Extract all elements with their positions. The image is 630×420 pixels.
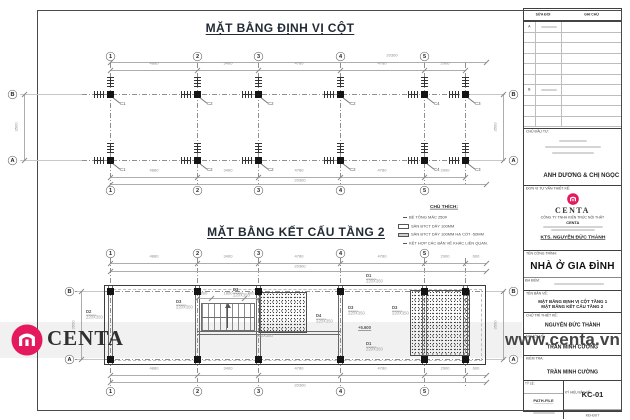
- revision-cell: A: [524, 22, 536, 32]
- grid-bubble: 2: [192, 248, 201, 257]
- rebar-mark-icon: [255, 143, 262, 153]
- company-line2: CENTA: [566, 221, 579, 223]
- dim-text: 20300: [380, 54, 403, 59]
- footer-table: TỶ LỆ: PATH-FILE KÝ HIỆU BẢN VẼ: KC-01 K…: [524, 381, 621, 419]
- dim-text: 20300: [288, 179, 311, 184]
- revision-mark: B: [528, 88, 530, 92]
- company-address-placeholder: [551, 229, 595, 231]
- dim-text: 4780: [370, 62, 393, 67]
- dim-text: 4880: [142, 255, 165, 260]
- dim-tick: [484, 60, 490, 66]
- sheet-code: KĐ-Đ07: [577, 414, 608, 418]
- beam-size: 220X350: [348, 311, 365, 316]
- dim-text: 2900: [433, 255, 456, 260]
- legend-item-text: SÀN BTCT DÀY 100MM: [411, 224, 454, 228]
- checker-name: TRẦN MINH CƯỜNG: [544, 369, 600, 375]
- column-label: C2: [350, 102, 356, 106]
- line: [470, 94, 505, 95]
- client-details-placeholder: [524, 140, 621, 154]
- grid-bubble: 5: [419, 386, 428, 395]
- top-plan-title: MẶT BẰNG ĐỊNH VỊ CỘT: [170, 21, 390, 35]
- path-file-label: PATH-FILE: [534, 397, 554, 404]
- beam-label: 150X350: [256, 334, 273, 339]
- revision-table: SỬA ĐỔIGHI CHÚAB: [524, 9, 621, 129]
- column-marker: [337, 288, 344, 295]
- dim-text: 2900: [433, 367, 456, 372]
- rebar-mark-icon: [94, 157, 104, 164]
- grid-bubble: 4: [335, 185, 344, 194]
- legend-heading: CHÚ THÍCH:: [430, 204, 485, 209]
- grid-bubble: 3: [253, 386, 262, 395]
- drawing-name-label: TÊN BẢN VẼ:: [526, 292, 548, 296]
- column-marker: [107, 288, 114, 295]
- grid-bubble: 2: [192, 185, 201, 194]
- beam-line: [195, 286, 196, 364]
- beam-label: D1220X350: [366, 342, 383, 352]
- grid-bubble: A: [508, 354, 517, 363]
- dim-text: 4880: [142, 62, 165, 67]
- grid-bubble: B: [508, 89, 517, 98]
- rebar-mark-icon: [94, 91, 104, 98]
- line: [470, 160, 505, 161]
- rebar-mark-icon: [107, 143, 114, 153]
- dim-text: 2900: [433, 62, 456, 67]
- column-marker: [194, 288, 201, 295]
- hatch-lowered-slab: [410, 290, 470, 356]
- grid-bubble: 1: [105, 248, 114, 257]
- dim-text: 20300: [288, 265, 311, 270]
- column-marker: [421, 288, 428, 295]
- beam-line: [112, 286, 113, 364]
- dim-text: 600: [464, 255, 487, 260]
- drawing-code-label: KÝ HIỆU BẢN VẼ:: [565, 391, 591, 394]
- dim-text: 3400: [216, 255, 239, 260]
- project-label: TÊN CÔNG TRÌNH:: [526, 252, 557, 256]
- revision-cell: [536, 22, 562, 32]
- revision-cell: [536, 54, 562, 64]
- rebar-mark-icon: [242, 91, 252, 98]
- line: [20, 94, 82, 95]
- grid-bubble: 4: [335, 386, 344, 395]
- dim-text: 4880: [142, 169, 165, 174]
- beam-size: 150X350: [256, 334, 273, 339]
- dash-bullet-icon: [403, 243, 407, 244]
- drawing-name-section: TÊN BẢN VẼ: MẶT BẰNG ĐỊNH VỊ CỘT TẦNG 1 …: [524, 291, 621, 313]
- grid-bubble: B: [64, 286, 73, 295]
- rebar-mark-icon: [449, 157, 459, 164]
- location-label: ĐỊA ĐIỂM:: [525, 279, 540, 282]
- company-line1: CÔNG TY TNHH KIẾN TRÚC NỘI THẤT: [541, 216, 604, 218]
- stair-arrow: [227, 306, 228, 328]
- column-label: C4: [434, 102, 440, 106]
- rebar-mark-icon: [194, 77, 201, 87]
- revision-note-placeholder: [541, 89, 557, 91]
- grid-bubble: B: [7, 89, 16, 98]
- column-label: C2: [207, 168, 213, 172]
- rebar-mark-icon: [337, 143, 344, 153]
- beam-size: 220X350: [86, 315, 103, 320]
- column-label: C3: [475, 168, 481, 172]
- dim-text: 3500: [15, 115, 20, 138]
- revision-row: [524, 33, 621, 44]
- checker-label: KIỂM TRA:: [526, 357, 543, 361]
- revision-cell: [536, 96, 562, 106]
- revision-cell: [562, 75, 621, 85]
- revision-row: [524, 64, 621, 75]
- dim-text: 4780: [287, 169, 310, 174]
- sheet-frame: [37, 10, 621, 11]
- title-block: SỬA ĐỔIGHI CHÚAB CHỦ ĐẦU TƯ: ANH DƯƠNG &…: [523, 8, 622, 412]
- grid-bubble: 1: [105, 386, 114, 395]
- dim-tick: [484, 380, 490, 386]
- column-marker: [337, 356, 344, 363]
- revision-cell: [524, 43, 536, 53]
- grid-bubble: A: [508, 155, 517, 164]
- location-row: ĐỊA ĐIỂM:: [524, 277, 621, 290]
- client-label: CHỦ ĐẦU TƯ:: [526, 130, 549, 134]
- column-marker: [255, 356, 262, 363]
- rebar-mark-icon: [421, 143, 428, 153]
- legend-item: SÀN BTCT DÀY 100MM HẠ CỐT -50MM: [396, 231, 522, 239]
- revision-cell: [536, 64, 562, 74]
- beam-label: D2220X350: [86, 310, 103, 320]
- revision-cell: [562, 96, 621, 106]
- legend: CHÚ THÍCH: BÊ TÔNG MÁC 250# SÀN BTCT DÀY…: [396, 204, 522, 247]
- rebar-mark-icon: [449, 91, 459, 98]
- row-axis: [82, 94, 500, 95]
- legend-item-text: KẾT HỢP CÁC BẢN VẼ KHÁC LIÊN QUAN.: [409, 241, 488, 245]
- revision-header-cell: SỬA ĐỔI: [534, 13, 553, 17]
- beam-size: 220X350: [176, 305, 193, 310]
- row-axis: [82, 160, 500, 161]
- column-label: C4: [434, 168, 440, 172]
- revision-row: A: [524, 22, 621, 33]
- revision-cell: [536, 117, 562, 127]
- dim-tick: [484, 269, 490, 275]
- rebar-mark-icon: [324, 91, 334, 98]
- grid-bubble: 5: [419, 185, 428, 194]
- dim-line: [503, 291, 504, 359]
- revision-cell: [536, 106, 562, 116]
- revision-cell: [562, 64, 621, 74]
- revision-cell: [562, 22, 621, 32]
- hatched-slab-swatch-icon: [398, 233, 409, 238]
- dim-tick: [484, 261, 490, 267]
- revision-cell: [562, 33, 621, 43]
- dim-text: 20300: [288, 384, 311, 389]
- rebar-mark-icon: [242, 157, 252, 164]
- bottom-plan-title: MẶT BẰNG KẾT CẤU TẦNG 2: [186, 225, 406, 239]
- revision-row: [524, 54, 621, 65]
- grid-bubble: 1: [105, 185, 114, 194]
- beam-size: 220X350: [366, 347, 383, 352]
- beam-line: [108, 286, 109, 364]
- grid-bubble: B: [508, 286, 517, 295]
- column-marker: [462, 288, 469, 295]
- dim-text: 3500: [494, 313, 499, 336]
- dim-text: 600: [464, 367, 487, 372]
- footer-placeholder: [533, 412, 555, 414]
- revision-cell: [524, 117, 536, 127]
- rebar-mark-icon: [462, 143, 469, 153]
- stair-arrowhead-icon: [225, 303, 231, 308]
- revision-row: B: [524, 85, 621, 96]
- grid-bubble: A: [64, 354, 73, 363]
- dim-line: [110, 375, 486, 376]
- line: [20, 160, 82, 161]
- level-mark: +5.600: [358, 326, 371, 331]
- beam-label: D3220X350: [176, 300, 193, 310]
- revision-cell: [524, 75, 536, 85]
- column-label: C1: [120, 168, 126, 172]
- beam-size: 220X350: [233, 293, 250, 298]
- client-name: ANH DƯƠNG & CHỊ NGỌC: [543, 172, 601, 179]
- legend-item: SÀN BTCT DÀY 100MM: [396, 223, 522, 231]
- dim-text: 4780: [287, 255, 310, 260]
- scale-label: TỶ LỆ:: [525, 382, 535, 385]
- dim-text: 3500: [494, 115, 499, 138]
- drawing-name-line1: MẶT BẰNG ĐỊNH VỊ CỘT TẦNG 1: [538, 299, 607, 302]
- project-section: TÊN CÔNG TRÌNH: NHÀ Ở GIA ĐÌNH ĐỊA ĐIỂM:: [524, 251, 621, 291]
- revision-mark: A: [528, 25, 530, 29]
- dim-text: 4780: [287, 367, 310, 372]
- rebar-mark-icon: [408, 157, 418, 164]
- column-marker: [194, 356, 201, 363]
- grid-bubble: 3: [253, 185, 262, 194]
- beam-line: [342, 286, 343, 364]
- revision-cell: B: [524, 85, 536, 95]
- beam-label: D3220X350: [348, 306, 365, 316]
- dim-text: 4780: [287, 62, 310, 67]
- beam-label: D4220X350: [316, 314, 333, 324]
- hatch-lowered-slab: [259, 292, 307, 333]
- revision-note-placeholder: [541, 26, 557, 28]
- grid-bubble: 4: [335, 51, 344, 60]
- company-architect: KTS. NGUYỄN ĐỨC THÀNH: [540, 234, 605, 240]
- revision-cell: [524, 106, 536, 116]
- grid-bubble: A: [7, 155, 16, 164]
- dim-line: [110, 70, 465, 71]
- company-address-placeholder: [543, 226, 603, 228]
- rebar-mark-icon: [408, 91, 418, 98]
- beam-size: 220X350: [392, 311, 409, 316]
- column-marker: [255, 288, 262, 295]
- rebar-mark-icon: [337, 77, 344, 87]
- grid-bubble: 4: [335, 248, 344, 257]
- revision-cell: [536, 75, 562, 85]
- dim-text: 4780: [370, 255, 393, 260]
- beam-size: 220X350: [366, 279, 383, 284]
- revision-row: [524, 106, 621, 117]
- dim-text: 4880: [142, 367, 165, 372]
- rebar-mark-icon: [194, 143, 201, 153]
- rebar-mark-icon: [181, 157, 191, 164]
- sheet-frame: [37, 410, 621, 411]
- revision-cell: [536, 33, 562, 43]
- grid-bubble: 1: [105, 51, 114, 60]
- column-label: C2: [268, 102, 274, 106]
- revision-row: [524, 117, 621, 128]
- designer-name: NGUYỄN ĐỨC THÀNH: [544, 322, 600, 328]
- grid-bubble: 3: [253, 51, 262, 60]
- dim-line: [110, 271, 486, 272]
- column-marker: [462, 356, 469, 363]
- drawing-sheet: MẶT BẰNG ĐỊNH VỊ CỘT MẶT BẰNG KẾT CẤU TẦ…: [0, 0, 630, 420]
- column-label: C2: [207, 102, 213, 106]
- beam-label: D3220X350: [233, 288, 250, 298]
- centa-mini-logo-icon: [567, 193, 579, 205]
- beam-line: [338, 286, 339, 364]
- rebar-mark-icon: [255, 77, 262, 87]
- stair-landing-line: [201, 317, 255, 318]
- revision-cell: [562, 85, 621, 95]
- revision-cell: [562, 43, 621, 53]
- designer-label: CHỦ TRÌ THIẾT KẾ:: [526, 314, 558, 318]
- project-name: NHÀ Ở GIA ĐÌNH: [524, 261, 621, 272]
- revision-cell: [562, 106, 621, 116]
- beam-size: 220X350: [316, 319, 333, 324]
- legend-item: BÊ TÔNG MÁC 250#: [396, 214, 522, 222]
- legend-item-text: SÀN BTCT DÀY 100MM HẠ CỐT -50MM: [411, 233, 484, 237]
- column-label: C3: [475, 102, 481, 106]
- grid-bubble: 5: [419, 51, 428, 60]
- revision-cell: [536, 85, 562, 95]
- beam-label: D3220X350: [392, 306, 409, 316]
- beam-label: D1220X350: [366, 274, 383, 284]
- revision-row: [524, 96, 621, 107]
- rebar-mark-icon: [462, 77, 469, 87]
- location-placeholder: [554, 283, 604, 285]
- dim-tick: [484, 182, 490, 188]
- column-marker: [421, 356, 428, 363]
- column-label: C2: [350, 168, 356, 172]
- rebar-mark-icon: [324, 157, 334, 164]
- column-label: C2: [268, 168, 274, 172]
- plain-slab-swatch-icon: [398, 224, 409, 229]
- dash-bullet-icon: [403, 217, 407, 218]
- dim-text: 3400: [216, 62, 239, 67]
- dim-text: 4780: [370, 367, 393, 372]
- column-marker: [107, 356, 114, 363]
- dim-text: 4780: [370, 169, 393, 174]
- grid-bubble: 3: [253, 248, 262, 257]
- watermark-url: www.centa.vn: [505, 330, 620, 350]
- checker-section: KIỂM TRA: TRẦN MINH CƯỜNG: [524, 356, 621, 381]
- dim-text: 3400: [216, 169, 239, 174]
- client-section: CHỦ ĐẦU TƯ: ANH DƯƠNG & CHỊ NGỌC: [524, 129, 621, 186]
- dim-line: [110, 184, 486, 185]
- dim-line: [503, 94, 504, 160]
- sheet-frame: [621, 10, 622, 411]
- legend-item-text: BÊ TÔNG MÁC 250#: [409, 216, 447, 220]
- revision-cell: [524, 54, 536, 64]
- watermark-brand: CENTA: [47, 326, 124, 351]
- grid-bubble: 5: [419, 248, 428, 257]
- rebar-mark-icon: [107, 77, 114, 87]
- drawing-name-line2: MẶT BẰNG KẾT CẤU TẦNG 2: [542, 304, 604, 307]
- revision-cell: [536, 43, 562, 53]
- revision-cell: [524, 33, 536, 43]
- dim-tick: [484, 373, 490, 379]
- revision-header-cell: GHI CHÚ: [577, 13, 607, 17]
- company-section: ĐƠN VỊ TƯ VẤN THIẾT KẾ: CENTA CÔNG TY TN…: [524, 186, 621, 251]
- revision-cell: [524, 96, 536, 106]
- column-label: C1: [120, 102, 126, 106]
- legend-item: KẾT HỢP CÁC BẢN VẼ KHÁC LIÊN QUAN.: [396, 240, 522, 248]
- dim-text: 3400: [216, 367, 239, 372]
- company-label: ĐƠN VỊ TƯ VẤN THIẾT KẾ:: [526, 187, 570, 191]
- company-brand: CENTA: [555, 206, 590, 215]
- dim-tick: [501, 158, 507, 164]
- rebar-mark-icon: [181, 91, 191, 98]
- rebar-mark-icon: [421, 77, 428, 87]
- centa-logo-icon: [11, 324, 43, 356]
- dim-line: [24, 94, 25, 160]
- revision-cell: [562, 54, 621, 64]
- revision-row: [524, 43, 621, 54]
- revision-cell: [562, 117, 621, 127]
- grid-bubble: 2: [192, 386, 201, 395]
- revision-row: [524, 75, 621, 86]
- revision-cell: [524, 64, 536, 74]
- grid-bubble: 2: [192, 51, 201, 60]
